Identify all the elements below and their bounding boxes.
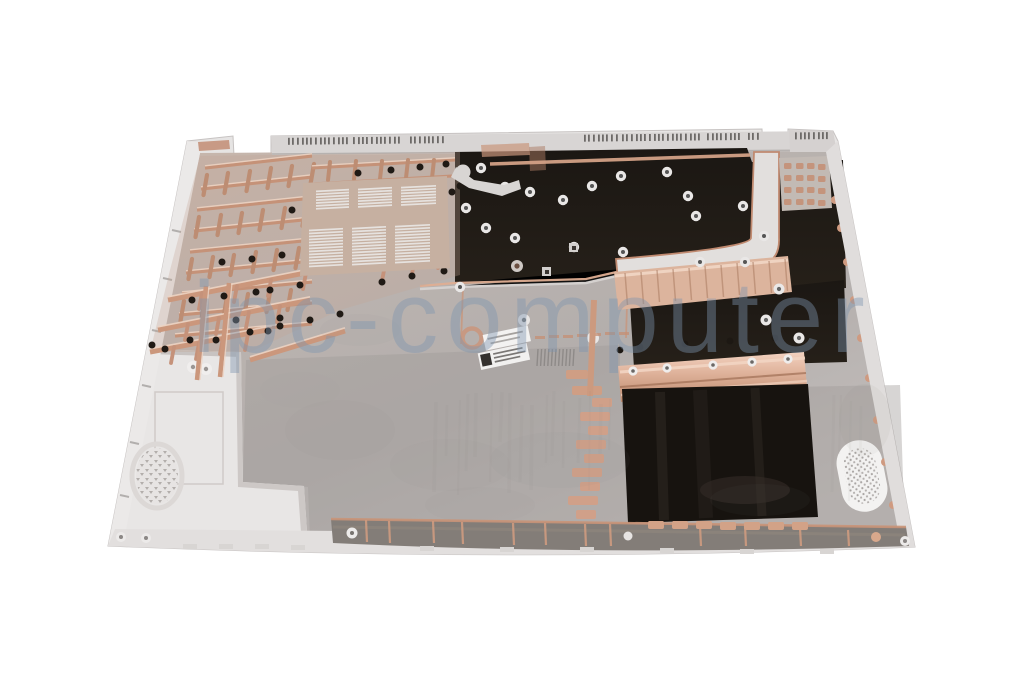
svg-text:ipc-computer: ipc-computer [193, 262, 873, 374]
